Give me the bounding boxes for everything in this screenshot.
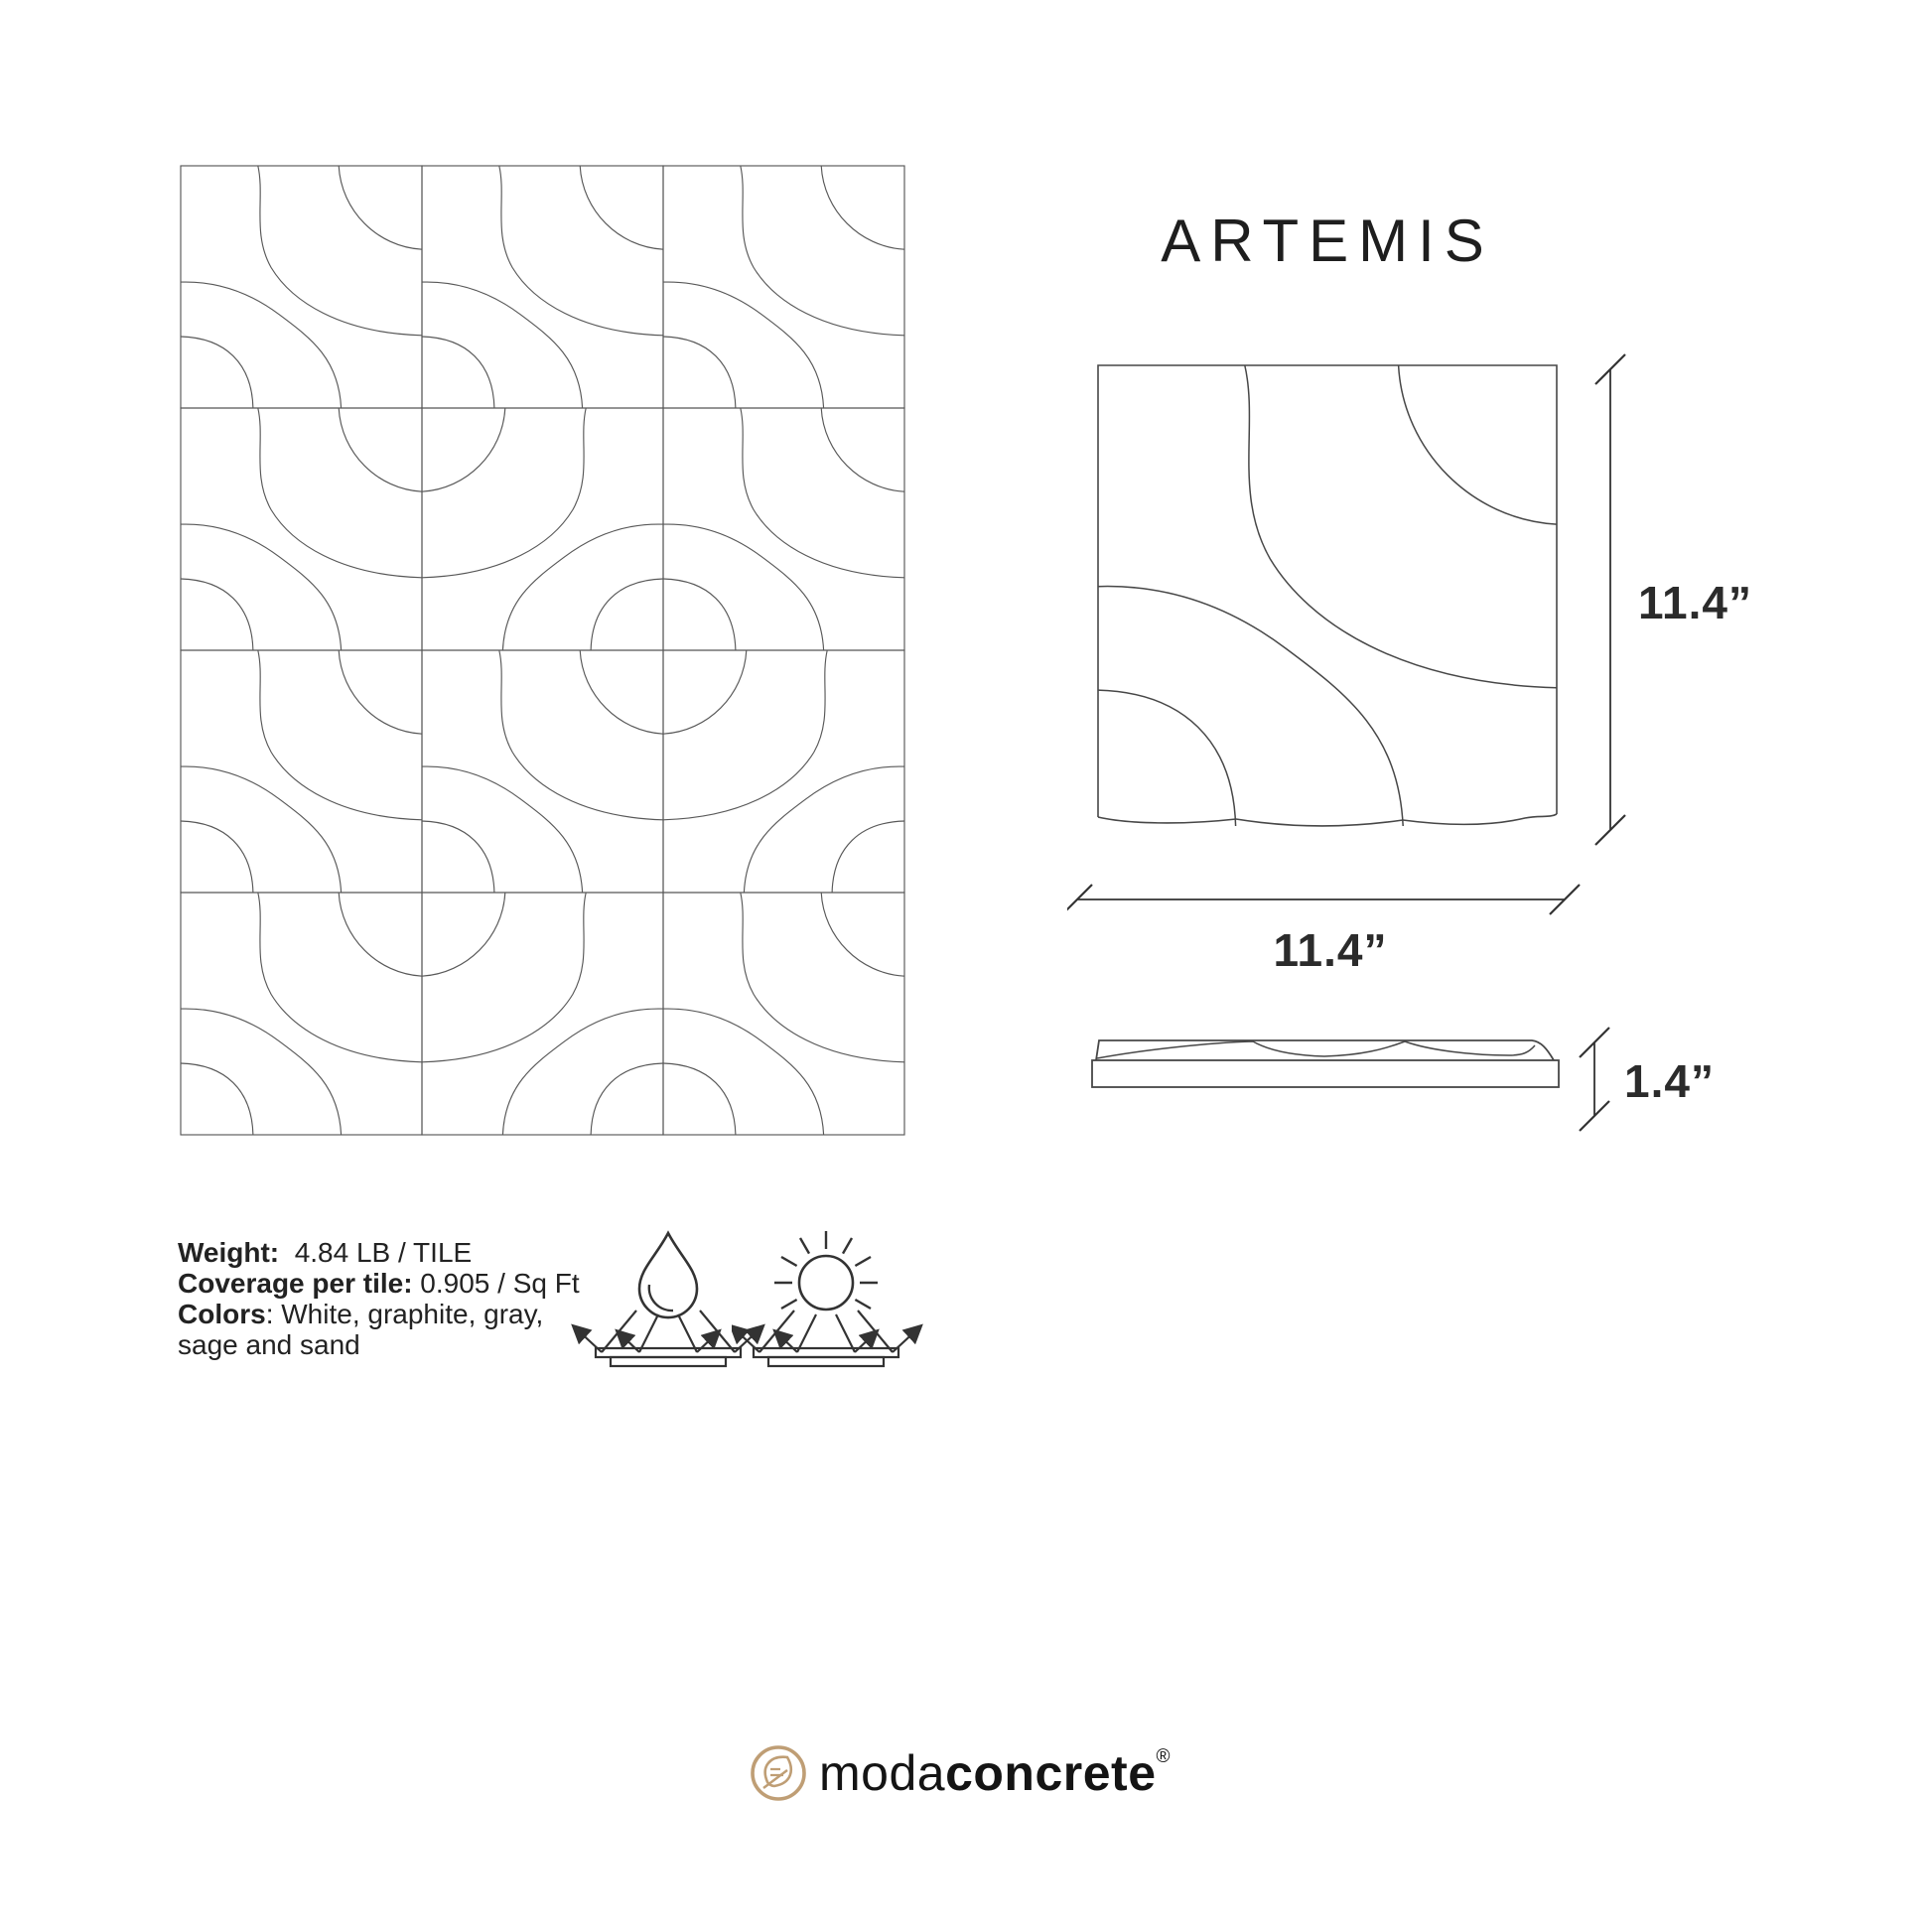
width-dimension-line (1067, 878, 1584, 921)
brand-logo: modaconcrete® (748, 1739, 1171, 1807)
brand-name-bold: concrete (945, 1745, 1156, 1801)
registered-mark: ® (1157, 1746, 1172, 1767)
brand-name-regular: moda (819, 1745, 945, 1801)
sun-icon (732, 1223, 930, 1372)
thickness-dimension-label: 1.4” (1624, 1054, 1715, 1108)
tile-side-profile-drawing (1080, 1031, 1577, 1092)
brand-logo-text: modaconcrete® (819, 1744, 1171, 1802)
tile-pattern-grid (180, 165, 905, 1138)
spec-sheet: ARTEMIS 11.4” 11.4” 1.4” Weight: 4.84 LB… (0, 0, 1932, 1932)
leaf-logo-icon (748, 1742, 809, 1804)
single-tile-drawing (1096, 363, 1559, 832)
product-title: ARTEMIS (1096, 207, 1559, 275)
height-dimension-label: 11.4” (1638, 576, 1752, 629)
width-dimension-label: 11.4” (1096, 923, 1565, 977)
